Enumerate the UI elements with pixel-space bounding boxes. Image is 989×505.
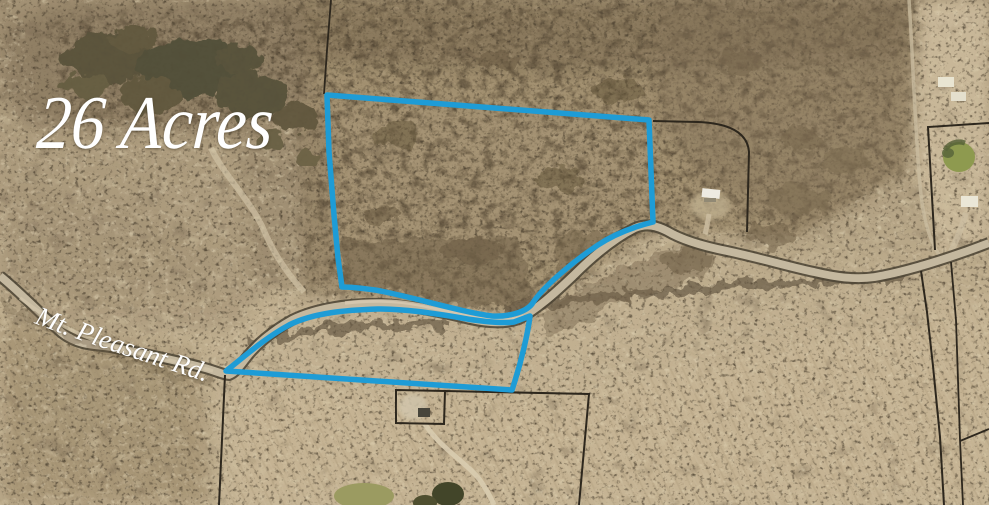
svg-text:26 Acres: 26 Acres — [34, 81, 276, 165]
